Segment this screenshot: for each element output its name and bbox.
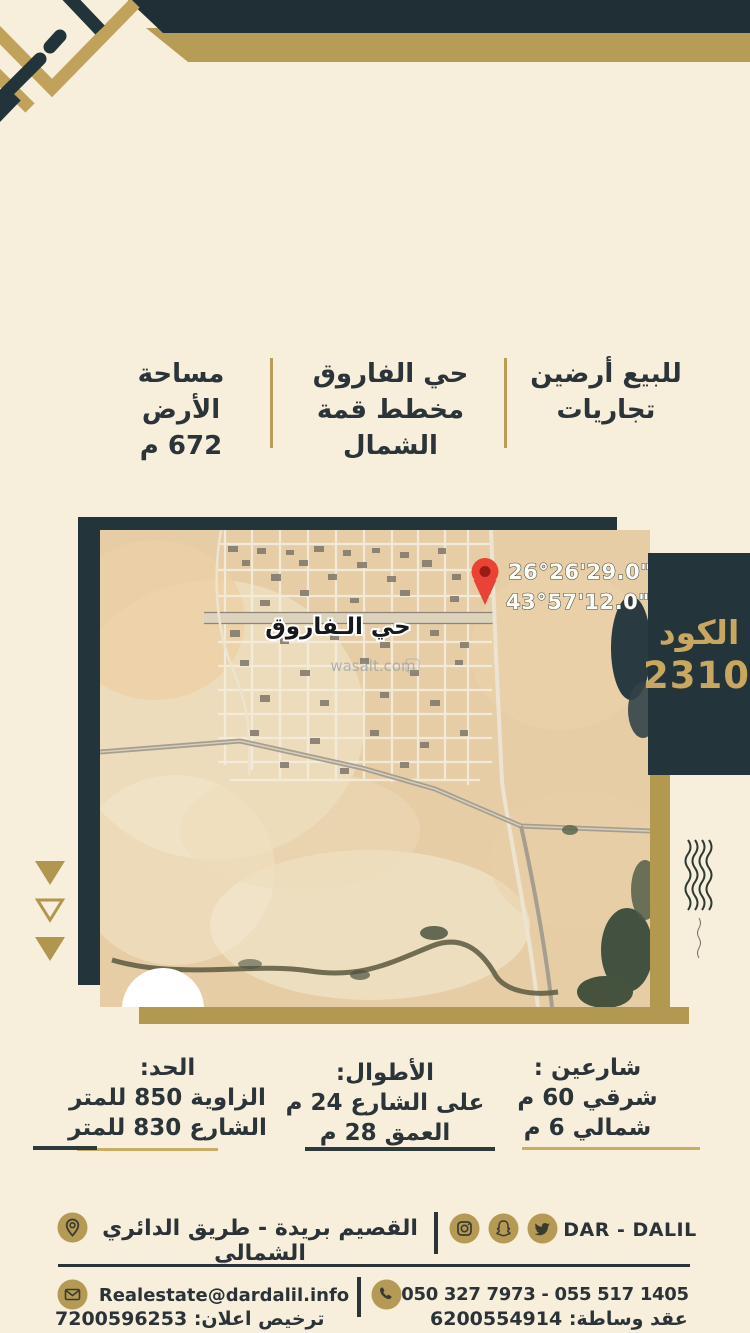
- license-number: ترخيص اعلان: 7200596253: [55, 1308, 340, 1330]
- offer-line1: للبيع أرضين: [500, 356, 712, 392]
- map-watermark: wasalt.com: [330, 657, 415, 675]
- latitude-label: 26°26'29.0"N: [508, 560, 650, 584]
- limit-line2: الشارع 830 للمتر: [55, 1113, 280, 1143]
- map-pin-icon: [57, 1212, 88, 1243]
- limit-title: الحد:: [55, 1053, 280, 1083]
- underline-limit: [77, 1148, 218, 1151]
- district-plan: مخطط قمة الشمال: [283, 392, 498, 464]
- district-name: حي الفاروق: [283, 356, 498, 392]
- offer-line2: تجاريات: [500, 392, 712, 428]
- phone-numbers[interactable]: 050 327 7973 - 055 517 1405: [400, 1284, 690, 1305]
- longitude-label: 43°57'12.0"E: [506, 590, 650, 614]
- mail-icon: [57, 1279, 88, 1310]
- code-box: الكود 2310: [648, 553, 750, 775]
- underline-short: [33, 1146, 97, 1150]
- streets-title: شارعين :: [470, 1053, 705, 1083]
- address-text: القصيم بريدة - طريق الدائري الشمالي: [92, 1216, 428, 1266]
- lengths-title: الأطوال:: [285, 1058, 485, 1088]
- email-text[interactable]: Realestate@dardalil.info: [93, 1285, 355, 1306]
- instagram-icon[interactable]: [449, 1213, 480, 1244]
- limit-column: الحد: الزاوية 850 للمتر الشارع 830 للمتر: [55, 1053, 280, 1143]
- phone-icon: [371, 1279, 402, 1310]
- real-estate-flyer: للبيع أرضين تجاريات حي الفاروق مخطط قمة …: [0, 0, 750, 1333]
- triangles-decoration: [34, 860, 66, 964]
- satellite-map-image: حي الـفاروق wasalt.com 26°26'29.0"N 43°5…: [100, 530, 650, 1007]
- footer-separator-1: [434, 1212, 438, 1254]
- lengths-line2: العمق 28 م: [285, 1118, 485, 1148]
- summary-divider-right: [504, 358, 507, 448]
- code-value: 2310: [648, 653, 750, 699]
- streets-line2: شمالي 6 م: [470, 1113, 705, 1143]
- squiggle-decoration: [680, 838, 722, 960]
- snapchat-icon[interactable]: [488, 1213, 519, 1244]
- contract-number: عقد وساطة: 6200554914: [430, 1308, 690, 1330]
- footer-divider: [58, 1264, 690, 1267]
- footer-separator-2: [357, 1277, 361, 1317]
- underline-streets: [522, 1147, 700, 1150]
- twitter-icon[interactable]: [527, 1213, 558, 1244]
- offer-column: للبيع أرضين تجاريات: [500, 356, 712, 428]
- corner-lattice-decoration: [0, 0, 220, 320]
- district-column: حي الفاروق مخطط قمة الشمال: [283, 356, 498, 464]
- underline-lengths: [305, 1147, 495, 1151]
- lengths-column: الأطوال: على الشارع 24 م العمق 28 م: [285, 1058, 485, 1148]
- satellite-map: حي الـفاروق wasalt.com 26°26'29.0"N 43°5…: [100, 530, 650, 1007]
- map-district-label: حي الـفاروق: [265, 614, 411, 640]
- area-value: 672 م: [95, 428, 267, 464]
- summary-divider-left: [270, 358, 273, 448]
- code-label: الكود: [648, 613, 750, 653]
- area-column: مساحة الأرض 672 م: [95, 356, 267, 464]
- lengths-line1: على الشارع 24 م: [285, 1088, 485, 1118]
- map-gold-shadow-right: [650, 770, 670, 1007]
- brand-name: DAR - DALIL: [563, 1219, 697, 1241]
- area-label: مساحة الأرض: [95, 356, 267, 428]
- streets-column: شارعين : شرقي 60 م شمالي 6 م: [470, 1053, 705, 1143]
- limit-line1: الزاوية 850 للمتر: [55, 1083, 280, 1113]
- map-gold-shadow-bottom: [139, 1007, 689, 1024]
- streets-line1: شرقي 60 م: [470, 1083, 705, 1113]
